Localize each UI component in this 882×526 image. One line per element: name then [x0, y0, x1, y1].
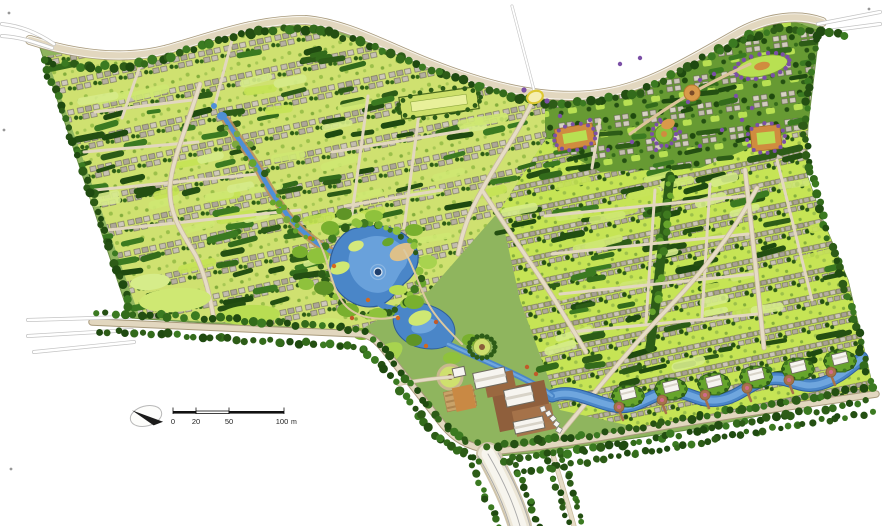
map-legend: 0 20 50 100 m: [128, 402, 297, 431]
scale-bar: 0 20 50 100 m: [171, 408, 297, 427]
northeast-plaza-center: [690, 91, 695, 96]
service-road-trees-1: [544, 449, 572, 525]
ornamental-ring-center: [479, 344, 485, 350]
site-master-plan: 0 20 50 100 m: [0, 0, 882, 526]
north-arrow: [128, 402, 164, 431]
scale-unit: m: [291, 419, 297, 426]
north-access-lane: [512, 6, 535, 94]
scale-segment-3: [229, 411, 284, 414]
scale-label-0: 0: [171, 417, 175, 426]
scale-segment-2: [196, 411, 229, 414]
map-layers: [2, 6, 880, 526]
master-plan-page: 0 20 50 100 m: [0, 0, 882, 526]
purple-ring-circle-center: [661, 131, 667, 137]
fountain: [374, 268, 382, 276]
scale-label-20: 20: [192, 417, 200, 426]
scale-label-100: 100: [276, 417, 289, 426]
scale-segment-1: [173, 411, 196, 414]
scale-label-50: 50: [225, 417, 233, 426]
purple-garden-east-lawn: [756, 131, 775, 145]
